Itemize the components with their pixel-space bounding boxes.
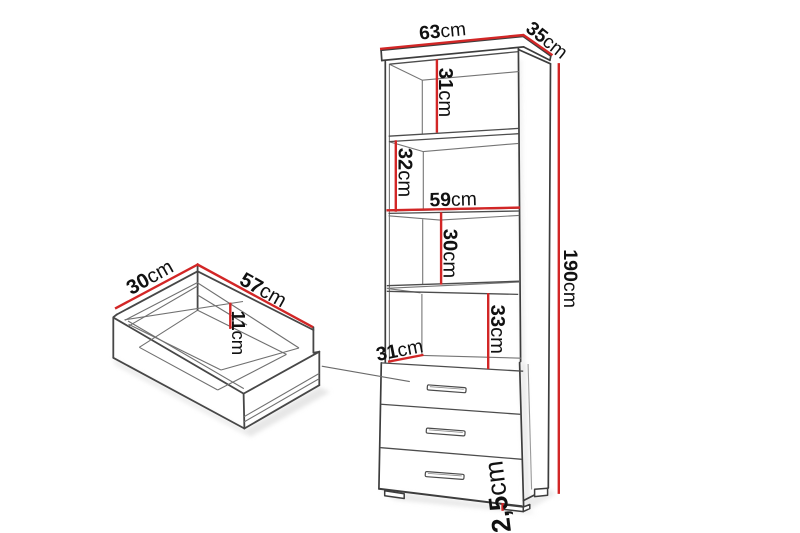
svg-text:32cm: 32cm <box>393 148 415 197</box>
svg-text:33cm: 33cm <box>486 305 508 354</box>
svg-text:59cm: 59cm <box>429 188 477 211</box>
svg-text:31cm: 31cm <box>434 68 456 117</box>
svg-text:11cm: 11cm <box>228 311 249 355</box>
svg-text:30cm: 30cm <box>439 229 461 278</box>
svg-text:190cm: 190cm <box>559 249 581 308</box>
